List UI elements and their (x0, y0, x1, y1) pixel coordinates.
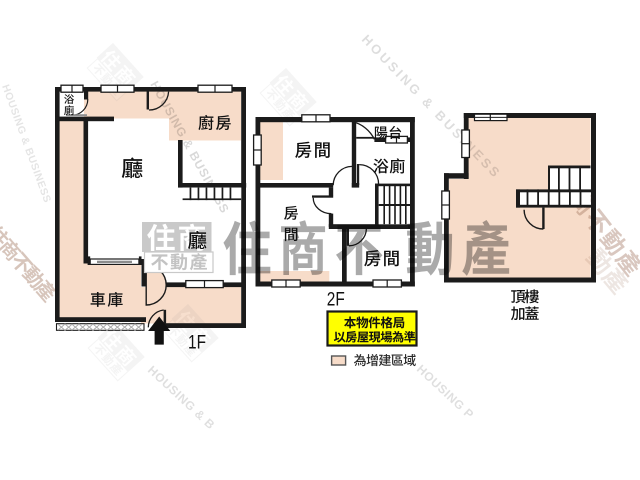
svg-text:1F: 1F (188, 332, 206, 354)
svg-text:2F: 2F (327, 289, 345, 310)
